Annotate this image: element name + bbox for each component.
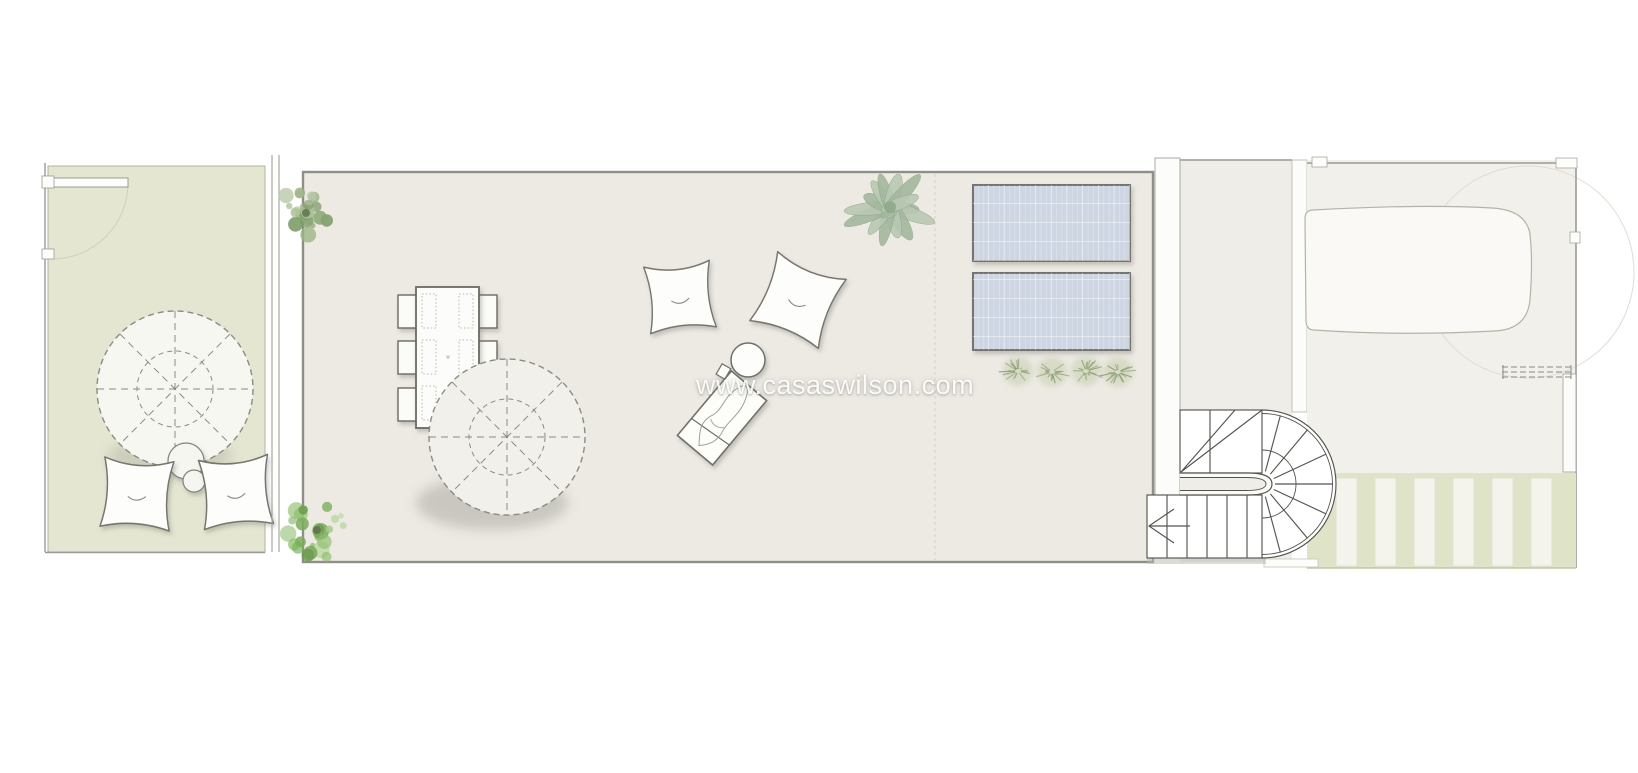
stair-shadow	[1147, 558, 1266, 564]
door-leaf	[46, 178, 128, 187]
solar-panel	[973, 273, 1130, 350]
wall-cap	[1312, 157, 1327, 167]
round-side-table-icon	[731, 343, 765, 377]
planter-edge	[1264, 559, 1318, 567]
section-gap-wall	[1292, 160, 1307, 412]
floorplan-drawing	[0, 0, 1638, 773]
terrace-back-wall	[1155, 158, 1180, 495]
right-wall-pier	[1563, 374, 1576, 472]
garden-cushion-icon	[100, 457, 174, 531]
garden-cushion-icon	[198, 454, 273, 529]
wall-cap	[1556, 158, 1577, 168]
terrace-cushion-icon	[644, 260, 717, 333]
skylight	[1305, 206, 1532, 333]
solar-panel	[973, 185, 1130, 261]
party-wall	[272, 155, 279, 552]
wall-cap	[1570, 232, 1580, 243]
door-jamb	[42, 249, 54, 259]
floorplan-page: www.casaswilson.com	[0, 0, 1638, 773]
door-jamb	[42, 176, 54, 188]
